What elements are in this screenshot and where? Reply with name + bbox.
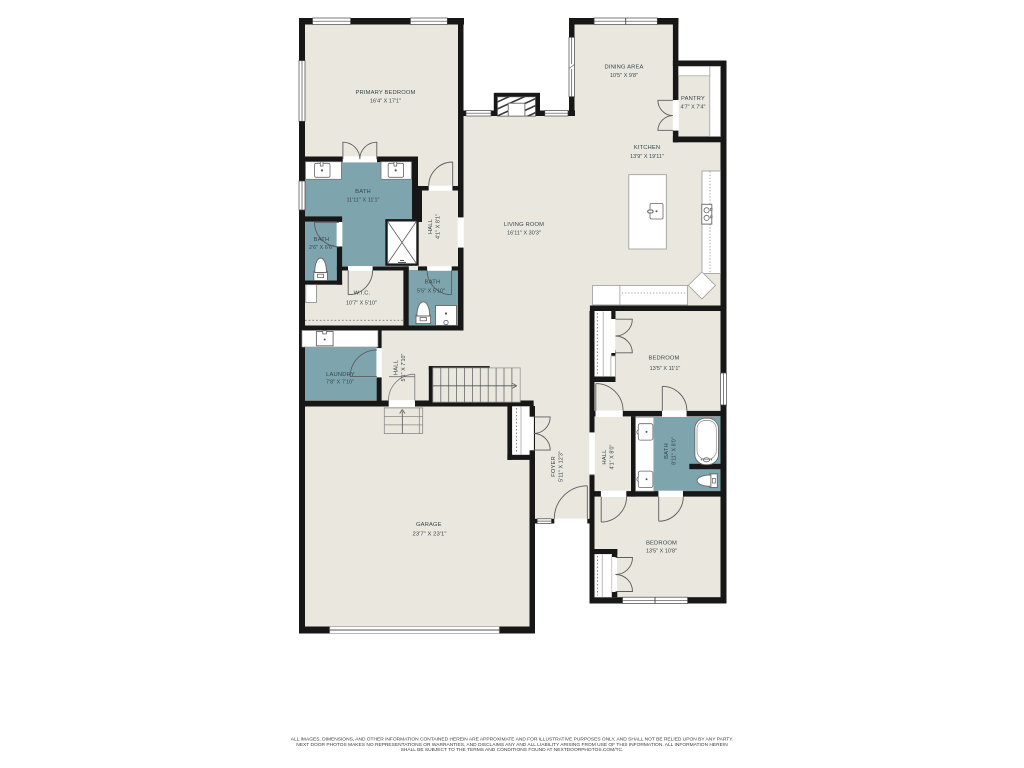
svg-text:DINING AREA: DINING AREA [604,65,643,71]
svg-text:13'5" X 10'8": 13'5" X 10'8" [646,549,677,555]
svg-text:7'8" X 7'10": 7'8" X 7'10" [326,380,354,386]
svg-text:13'5" X 11'1": 13'5" X 11'1" [650,366,681,372]
svg-text:ALL IMAGES, DIMENSIONS, AND OT: ALL IMAGES, DIMENSIONS, AND OTHER INFORM… [291,737,733,743]
svg-text:5'11" X 12'3": 5'11" X 12'3" [559,451,565,482]
svg-text:10'5" X 9'8": 10'5" X 9'8" [610,73,638,79]
svg-text:LIVING ROOM: LIVING ROOM [504,222,544,228]
svg-text:2'6" X 6'6": 2'6" X 6'6" [309,245,334,251]
svg-text:4'1" X 8'1": 4'1" X 8'1" [436,214,442,239]
svg-text:PANTRY: PANTRY [681,96,705,102]
svg-text:BATH: BATH [355,189,371,195]
svg-text:KITCHEN: KITCHEN [634,145,661,151]
svg-text:PRIMARY BEDROOM: PRIMARY BEDROOM [355,90,415,96]
svg-text:HALL: HALL [428,218,434,234]
svg-text:SHALL BE SUBJECT TO THE TERMS: SHALL BE SUBJECT TO THE TERMS AND CONDIT… [401,747,624,753]
svg-text:23'7" X 23'1": 23'7" X 23'1" [413,531,447,537]
svg-text:4'1" X 8'0": 4'1" X 8'0" [609,444,615,469]
svg-text:GARAGE: GARAGE [416,522,442,528]
svg-text:5'1" X 7'10": 5'1" X 7'10" [401,353,407,381]
svg-text:10'7" X 5'10": 10'7" X 5'10" [346,301,377,307]
svg-text:HALL: HALL [602,449,608,465]
svg-text:BEDROOM: BEDROOM [646,541,677,547]
svg-text:8'11" X 8'0": 8'11" X 8'0" [672,437,678,465]
svg-text:BATH: BATH [664,443,670,459]
svg-text:LAUNDRY: LAUNDRY [326,372,355,378]
svg-text:16'11" X 30'3": 16'11" X 30'3" [507,231,541,237]
svg-text:4'7" X 7'4": 4'7" X 7'4" [680,105,705,111]
svg-text:16'4" X 17'1": 16'4" X 17'1" [370,99,401,105]
svg-text:FOYER: FOYER [551,456,557,477]
svg-text:NEXT DOOR PHOTOS MAKES NO REPR: NEXT DOOR PHOTOS MAKES NO REPRESENTATION… [296,742,728,748]
svg-text:BEDROOM: BEDROOM [648,356,679,362]
svg-text:W.I.C.: W.I.C. [354,291,371,297]
svg-text:BATH: BATH [425,280,441,286]
svg-text:HALL: HALL [393,359,399,375]
svg-text:5'5" X 5'10": 5'5" X 5'10" [417,289,445,295]
svg-text:13'9" X 19'11": 13'9" X 19'11" [630,154,664,160]
svg-text:BATH: BATH [314,237,330,243]
svg-text:11'11" X 11'1": 11'11" X 11'1" [347,198,380,204]
